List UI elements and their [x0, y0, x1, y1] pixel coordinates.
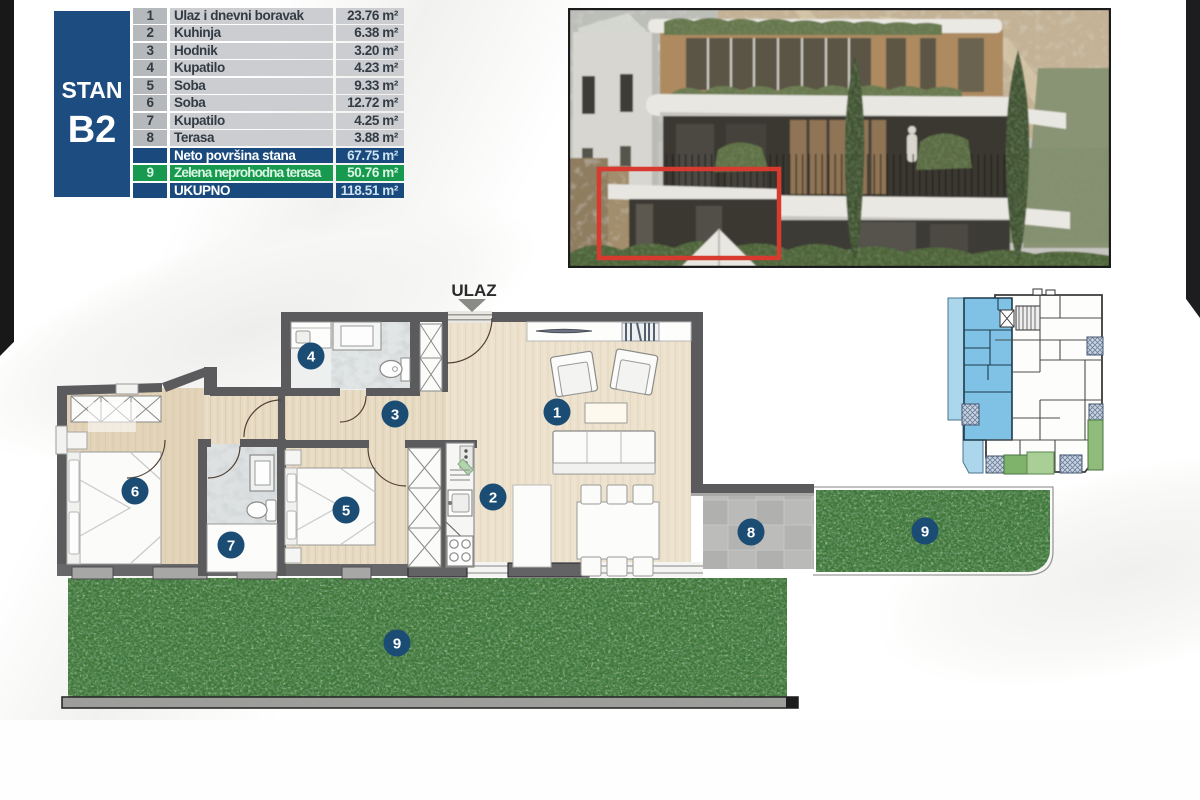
svg-text:3: 3 [391, 407, 399, 424]
svg-text:ULAZ: ULAZ [451, 281, 496, 300]
svg-text:8: 8 [747, 525, 755, 542]
svg-text:9: 9 [921, 524, 929, 541]
svg-text:7: 7 [227, 538, 235, 555]
svg-text:5: 5 [342, 503, 350, 520]
svg-text:9: 9 [393, 636, 401, 653]
svg-text:1: 1 [553, 405, 561, 422]
svg-text:6: 6 [131, 484, 139, 501]
svg-text:2: 2 [489, 490, 497, 507]
svg-text:4: 4 [307, 349, 316, 366]
